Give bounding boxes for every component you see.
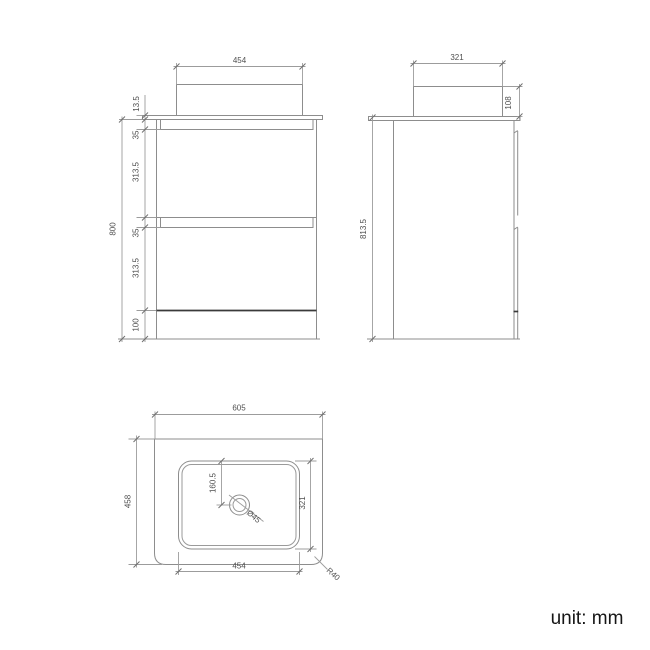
plan-dim-tap-offset: 160.5: [209, 458, 232, 508]
front-basin-width-label: 454: [233, 56, 247, 65]
plan-basin-bowl: [182, 465, 296, 546]
front-countertop-outline: [143, 116, 323, 120]
plan-tap-hole-inner: [233, 499, 246, 512]
drawing-svg: 454 13.5 35 313.5 35 313.5 100: [0, 0, 650, 650]
plan-basin-width-label: 454: [232, 562, 246, 571]
front-dim-basin-width: 454: [174, 56, 306, 85]
side-view: 321 108 813.5: [359, 53, 523, 342]
side-basin-outline: [414, 87, 503, 117]
front-top-handle-recess: [161, 120, 314, 130]
plan-view: 605 458 160.5 Ø45 321: [124, 404, 343, 583]
side-geometry: [367, 87, 520, 340]
side-dim-basin-height: 108: [503, 84, 523, 120]
plan-dim-basin-depth: 321: [295, 458, 317, 552]
side-dim-overall-height: 813.5: [359, 115, 376, 343]
side-overall-height-label: 813.5: [359, 218, 368, 239]
side-basin-height-label: 108: [504, 96, 513, 110]
plan-dim-corner-radius: R40: [315, 557, 343, 583]
front-overall-height-label: 800: [109, 222, 118, 236]
front-top-drawer-label: 313.5: [132, 161, 141, 182]
plan-tap-offset-label: 160.5: [209, 472, 218, 493]
plan-dim-basin-width: 454: [176, 552, 303, 575]
front-basin-outline: [177, 85, 303, 116]
front-bottom-recess-label: 35: [132, 228, 141, 237]
front-bottom-handle-recess: [161, 218, 314, 228]
side-basin-depth-label: 321: [450, 53, 464, 62]
plan-basin-depth-label: 321: [298, 496, 307, 510]
front-countertop-thickness-label: 13.5: [132, 96, 141, 112]
front-plinth-label: 100: [132, 318, 141, 332]
plan-corner-radius-label: R40: [325, 566, 342, 583]
front-view: 454 13.5 35 313.5 35 313.5 100: [109, 56, 323, 342]
plan-basin-rim: [179, 461, 300, 549]
side-countertop-outline: [369, 117, 521, 121]
plan-tap-diameter-label: Ø45: [245, 508, 263, 525]
plan-counter-depth-label: 458: [124, 494, 133, 508]
side-cabinet-body: [394, 121, 515, 340]
plan-dim-counter-depth: 458: [124, 436, 163, 568]
unit-label: unit: mm: [551, 608, 624, 629]
side-dim-basin-depth: 321: [411, 53, 506, 87]
plan-dim-counter-width: 605: [152, 404, 326, 440]
front-bottom-drawer-label: 313.5: [132, 257, 141, 278]
vanity-dimension-drawing: 454 13.5 35 313.5 35 313.5 100: [0, 0, 650, 650]
front-cabinet-body: [157, 120, 317, 340]
plan-counter-width-label: 605: [232, 404, 246, 413]
front-top-recess-label: 35: [132, 130, 141, 139]
front-geometry: [118, 85, 323, 340]
